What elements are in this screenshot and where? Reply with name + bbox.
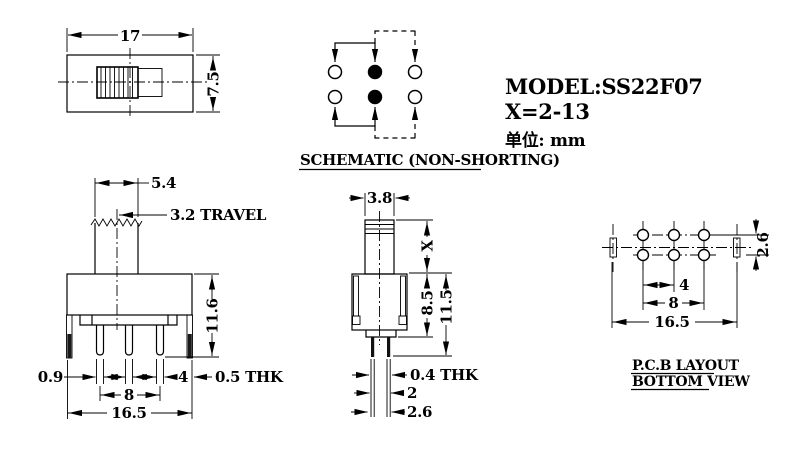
unit-label: 单位: mm [505,130,586,151]
terminal-open [409,91,422,104]
dim-2-6-side: 2.6 [351,403,432,421]
travel-value: 3.2 TRAVEL [170,206,267,224]
terminal-open [329,66,342,79]
side-pin-front [371,337,374,357]
pcb-hole [669,250,680,261]
dim-4-pcb: 4 [643,276,689,294]
dim-8-pcb: 8 [643,294,704,312]
schematic-terminals [329,66,422,104]
pin-gap-value: 2 [407,384,417,402]
pin-pitch-value: 4 [178,368,188,386]
dim-0-9-and-4-and-thk: 0.9 4 0.5 THK [38,368,284,386]
dim-x: X [396,220,437,272]
tab-thk-value: 0.5 THK [215,368,284,386]
dim-16-5-pcb: 16.5 [612,313,737,331]
side-total-height-value: 11.5 [438,289,456,324]
front-pins [97,325,164,355]
pcb-caption-line1: P.C.B LAYOUT [632,358,740,374]
pcb-hole [699,230,710,241]
pcb-caption-line2: BOTTOM VIEW [632,374,750,390]
schematic-caption: SCHEMATIC (NON-SHORTING) [300,151,560,169]
knob-rib-lines [101,67,133,98]
pcb-width-value: 16.5 [654,313,689,331]
pcb-hole [638,250,649,261]
side-body-height-value: 8.5 [419,290,437,315]
pcb-hole [638,230,649,241]
dim-8: 8 [100,386,160,404]
top-view-knob-plain [138,69,162,97]
pin-2 [126,325,133,355]
top-view: 17 7.5 [58,27,223,118]
side-bottom-step [366,330,396,337]
pcb-hole [669,230,680,241]
side-pin-extension-lines [371,359,390,417]
pin-3 [157,325,164,355]
pin-width-value: 0.9 [38,368,63,386]
schematic-solid-links [334,43,375,126]
top-view-knob-ribbed [97,67,138,98]
model-number: MODEL:SS22F07 [505,74,703,99]
title-block: MODEL:SS22F07 X=2-13 单位: mm [505,74,703,151]
side-pin-back [387,337,390,357]
dim-2: 2 [354,384,417,402]
terminal-open [409,66,422,79]
front-body-outline [67,274,192,315]
pcb-holes [638,230,710,261]
pcb-hole [699,250,710,261]
pcb-row-pitch-value: 2.6 [754,232,772,257]
schematic-dashed-links [374,31,415,138]
dim-travel: 3.2 TRAVEL [119,206,267,224]
front-view: 5.4 3.2 TRAVEL 11.6 0.9 [38,174,284,422]
knob-break-line [91,219,142,226]
x-range: X=2-13 [505,99,590,124]
pcb-hole-span-value: 8 [668,294,678,312]
datasheet-drawing: 17 7.5 [0,0,800,450]
terminal-common [369,66,382,79]
front-body-bottom-step [80,315,177,325]
dim-2-6-pcb: 2.6 [714,219,772,271]
front-height-value: 11.6 [204,298,222,333]
pin-1 [97,325,104,355]
side-knob-width-value: 3.8 [367,189,392,207]
top-height-value: 7.5 [205,71,223,96]
drawing-canvas: 17 7.5 [0,0,800,450]
pcb-hole-pitch-value: 4 [679,276,689,294]
knob-width-value: 5.4 [151,174,176,192]
dim-16-5: 16.5 [68,404,193,422]
pin-span-value: 8 [124,386,134,404]
front-width-value: 16.5 [111,404,146,422]
terminal-common [369,91,382,104]
side-knob-outline [365,220,394,274]
front-mount-tabs [67,315,193,358]
dim-5-4: 5.4 [95,174,176,217]
side-view: 3.8 X 8.5 11.5 [349,189,479,421]
pcb-view: 2.6 4 8 16.5 P.C.B LA [602,219,772,390]
pcb-column-centerlines [613,221,737,272]
top-width-value: 17 [120,27,140,45]
side-pin-span-value: 2.6 [407,403,432,421]
dim-7-5: 7.5 [196,55,223,112]
pin-thk-value: 0.4 THK [410,366,479,384]
terminal-open [329,91,342,104]
knob-height-value: X [419,240,437,252]
